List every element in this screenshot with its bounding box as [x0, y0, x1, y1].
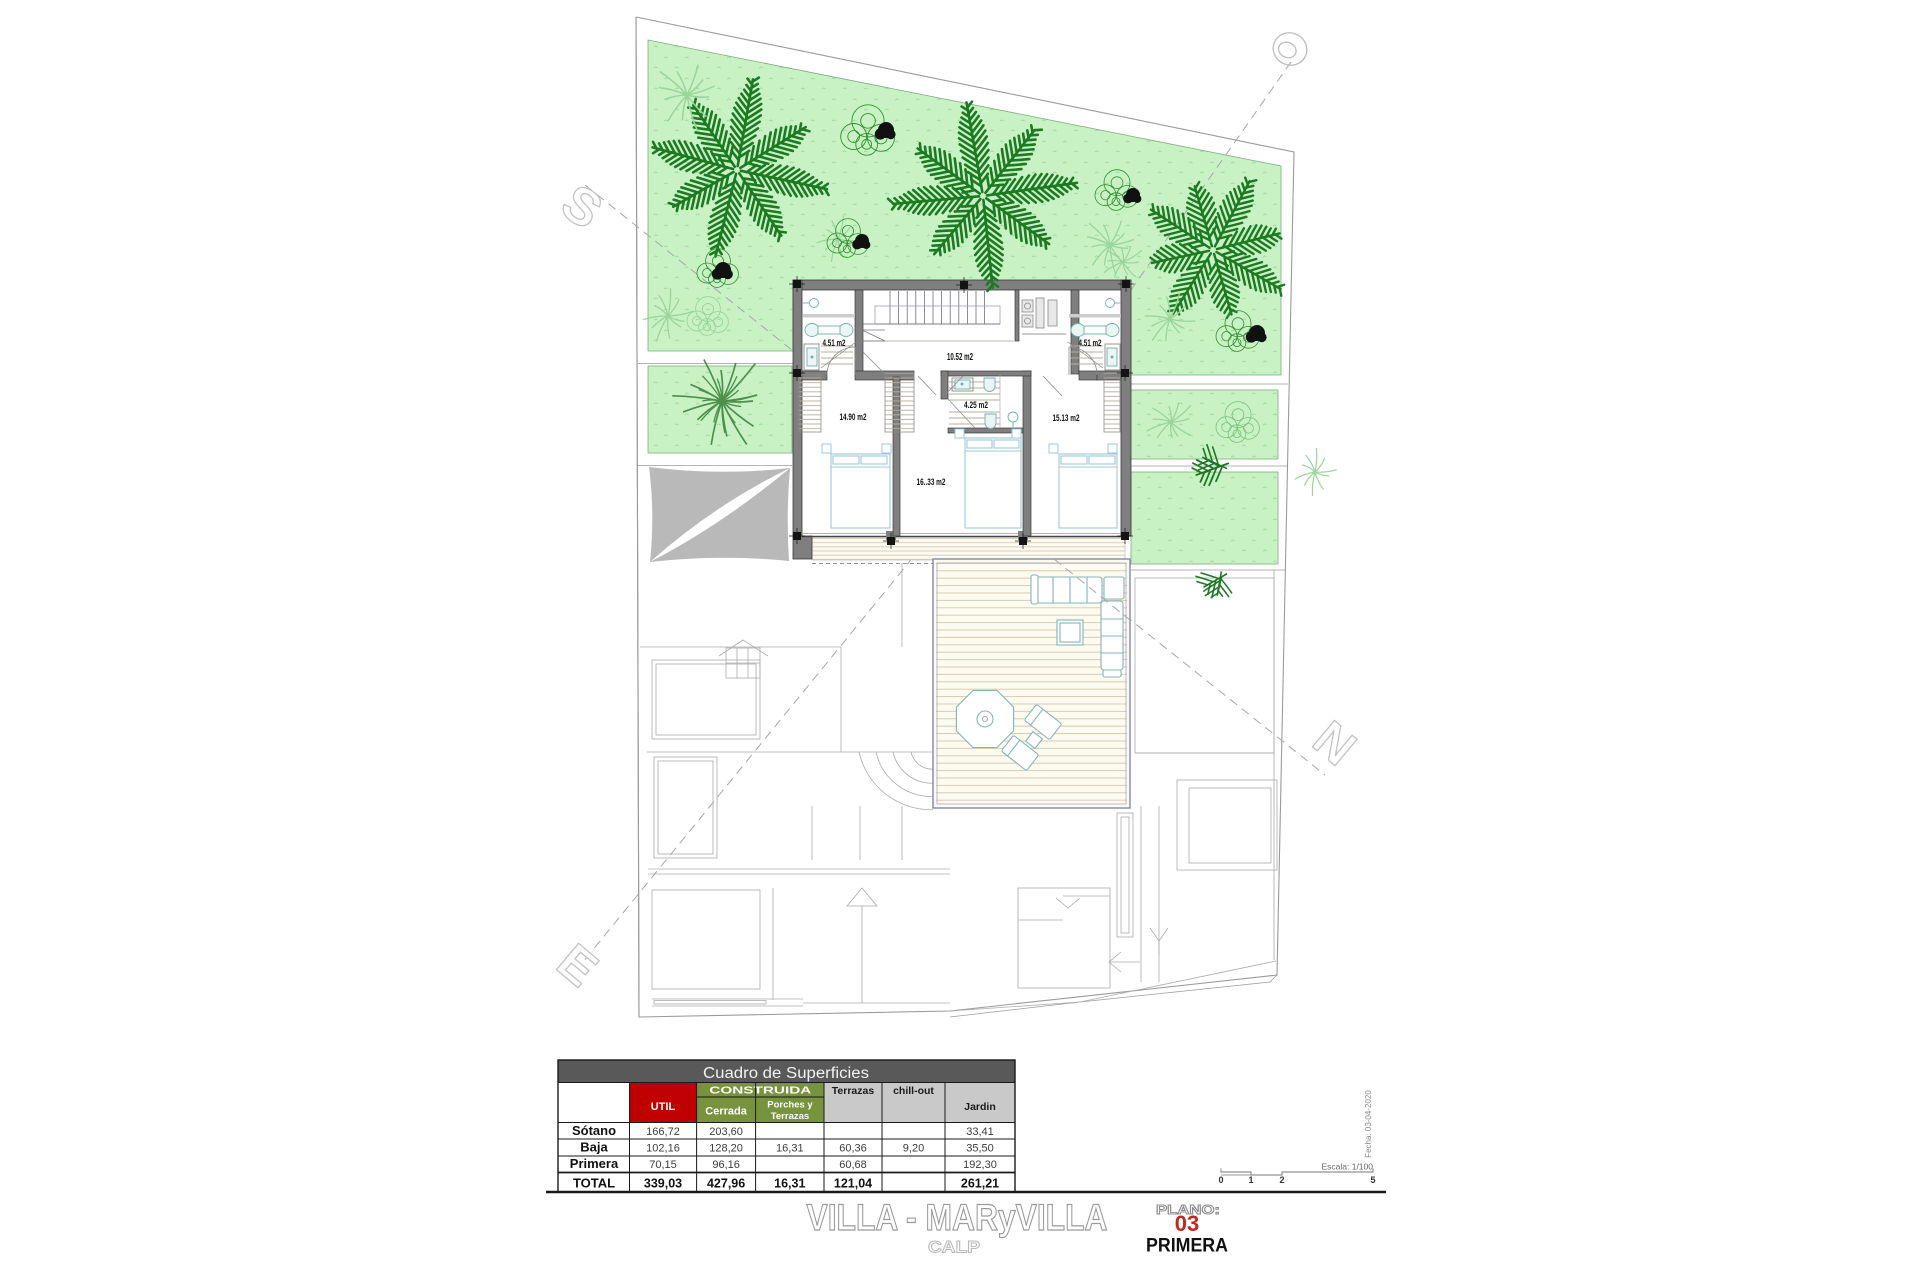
svg-text:9,20: 9,20	[903, 1143, 924, 1155]
svg-text:0: 0	[1218, 1175, 1223, 1185]
svg-text:TOTAL: TOTAL	[573, 1175, 615, 1190]
svg-text:Primera: Primera	[570, 1156, 619, 1171]
svg-text:203,60: 203,60	[709, 1126, 743, 1138]
svg-text:4.51 m2: 4.51 m2	[823, 338, 846, 348]
svg-text:UTIL: UTIL	[651, 1101, 676, 1113]
svg-text:60,36: 60,36	[839, 1143, 867, 1155]
svg-text:PRIMERA: PRIMERA	[1146, 1236, 1228, 1257]
svg-text:chill-out: chill-out	[893, 1085, 934, 1097]
svg-text:60,68: 60,68	[839, 1159, 867, 1171]
svg-text:Jardin: Jardin	[964, 1101, 996, 1113]
svg-text:261,21: 261,21	[961, 1176, 999, 1190]
svg-text:Escala: 1/100: Escala: 1/100	[1321, 1162, 1373, 1172]
svg-text:4.25 m2: 4.25 m2	[964, 400, 988, 411]
svg-text:Terrazas: Terrazas	[832, 1085, 875, 1097]
svg-text:427,96: 427,96	[707, 1176, 745, 1190]
svg-text:Sótano: Sótano	[572, 1123, 616, 1138]
svg-text:Terrazas: Terrazas	[771, 1111, 809, 1122]
svg-text:16,31: 16,31	[776, 1143, 804, 1155]
svg-text:CALP: CALP	[928, 1238, 980, 1257]
svg-text:16..33 m2: 16..33 m2	[917, 477, 946, 488]
svg-text:Porches y: Porches y	[767, 1100, 813, 1111]
svg-text:339,03: 339,03	[644, 1176, 682, 1190]
svg-text:03: 03	[1175, 1211, 1199, 1236]
svg-text:166,72: 166,72	[646, 1126, 680, 1138]
svg-text:192,30: 192,30	[963, 1159, 997, 1171]
svg-text:Cerrada: Cerrada	[705, 1106, 747, 1118]
svg-text:5: 5	[1370, 1175, 1375, 1185]
svg-text:14.90 m2: 14.90 m2	[840, 412, 867, 423]
svg-text:Fecha: 03-04-2020: Fecha: 03-04-2020	[1364, 1090, 1373, 1158]
svg-text:102,16: 102,16	[646, 1143, 680, 1155]
svg-text:1: 1	[1248, 1175, 1253, 1185]
svg-text:10.52 m2: 10.52 m2	[947, 352, 973, 363]
svg-text:15.13 m2: 15.13 m2	[1053, 413, 1080, 424]
svg-text:VILLA - MARyVILLA: VILLA - MARyVILLA	[807, 1197, 1108, 1238]
svg-text:70,15: 70,15	[649, 1159, 677, 1171]
svg-text:121,04: 121,04	[834, 1176, 872, 1190]
svg-text:2: 2	[1279, 1175, 1284, 1185]
svg-text:35,50: 35,50	[966, 1143, 994, 1155]
svg-text:Cuadro de Superficies: Cuadro de Superficies	[703, 1065, 869, 1082]
svg-text:CONSTRUIDA: CONSTRUIDA	[709, 1085, 812, 1097]
svg-text:96,16: 96,16	[712, 1159, 740, 1171]
svg-text:33,41: 33,41	[966, 1126, 994, 1138]
svg-text:16,31: 16,31	[774, 1176, 805, 1190]
svg-text:128,20: 128,20	[709, 1143, 743, 1155]
svg-text:4.51 m2: 4.51 m2	[1079, 338, 1102, 348]
svg-text:Baja: Baja	[580, 1140, 608, 1155]
